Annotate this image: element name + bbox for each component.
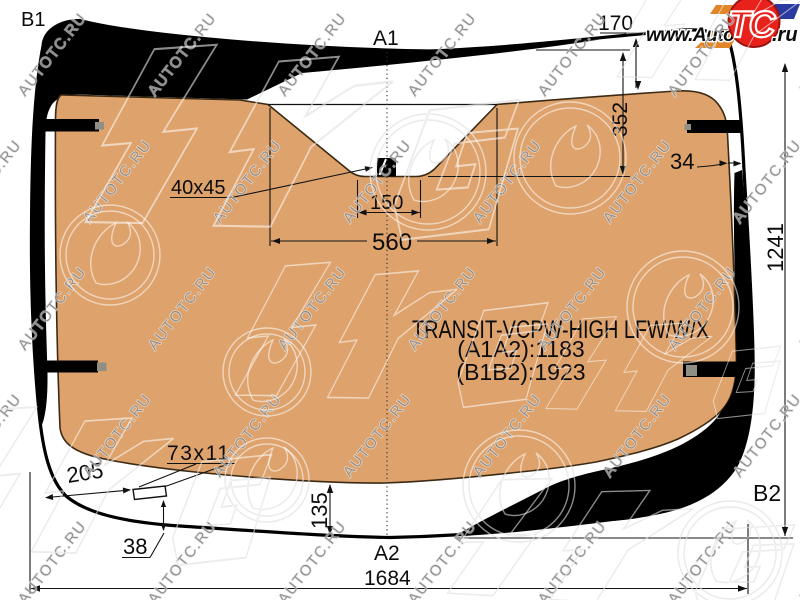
svg-text:B2: B2 (753, 480, 781, 506)
svg-text:34: 34 (670, 149, 694, 174)
svg-text:1684: 1684 (364, 567, 411, 590)
svg-text:560: 560 (372, 229, 412, 256)
svg-text:1241: 1241 (763, 223, 788, 272)
svg-text:.ru: .ru (772, 24, 798, 46)
svg-text:(B1B2):1923: (B1B2):1923 (456, 359, 585, 385)
svg-text:A2: A2 (374, 542, 400, 565)
svg-text:38: 38 (123, 534, 147, 559)
svg-text:B1: B1 (21, 9, 45, 31)
svg-text:A1: A1 (373, 27, 399, 50)
svg-text:40x45: 40x45 (171, 177, 226, 199)
svg-text:135: 135 (307, 492, 332, 529)
